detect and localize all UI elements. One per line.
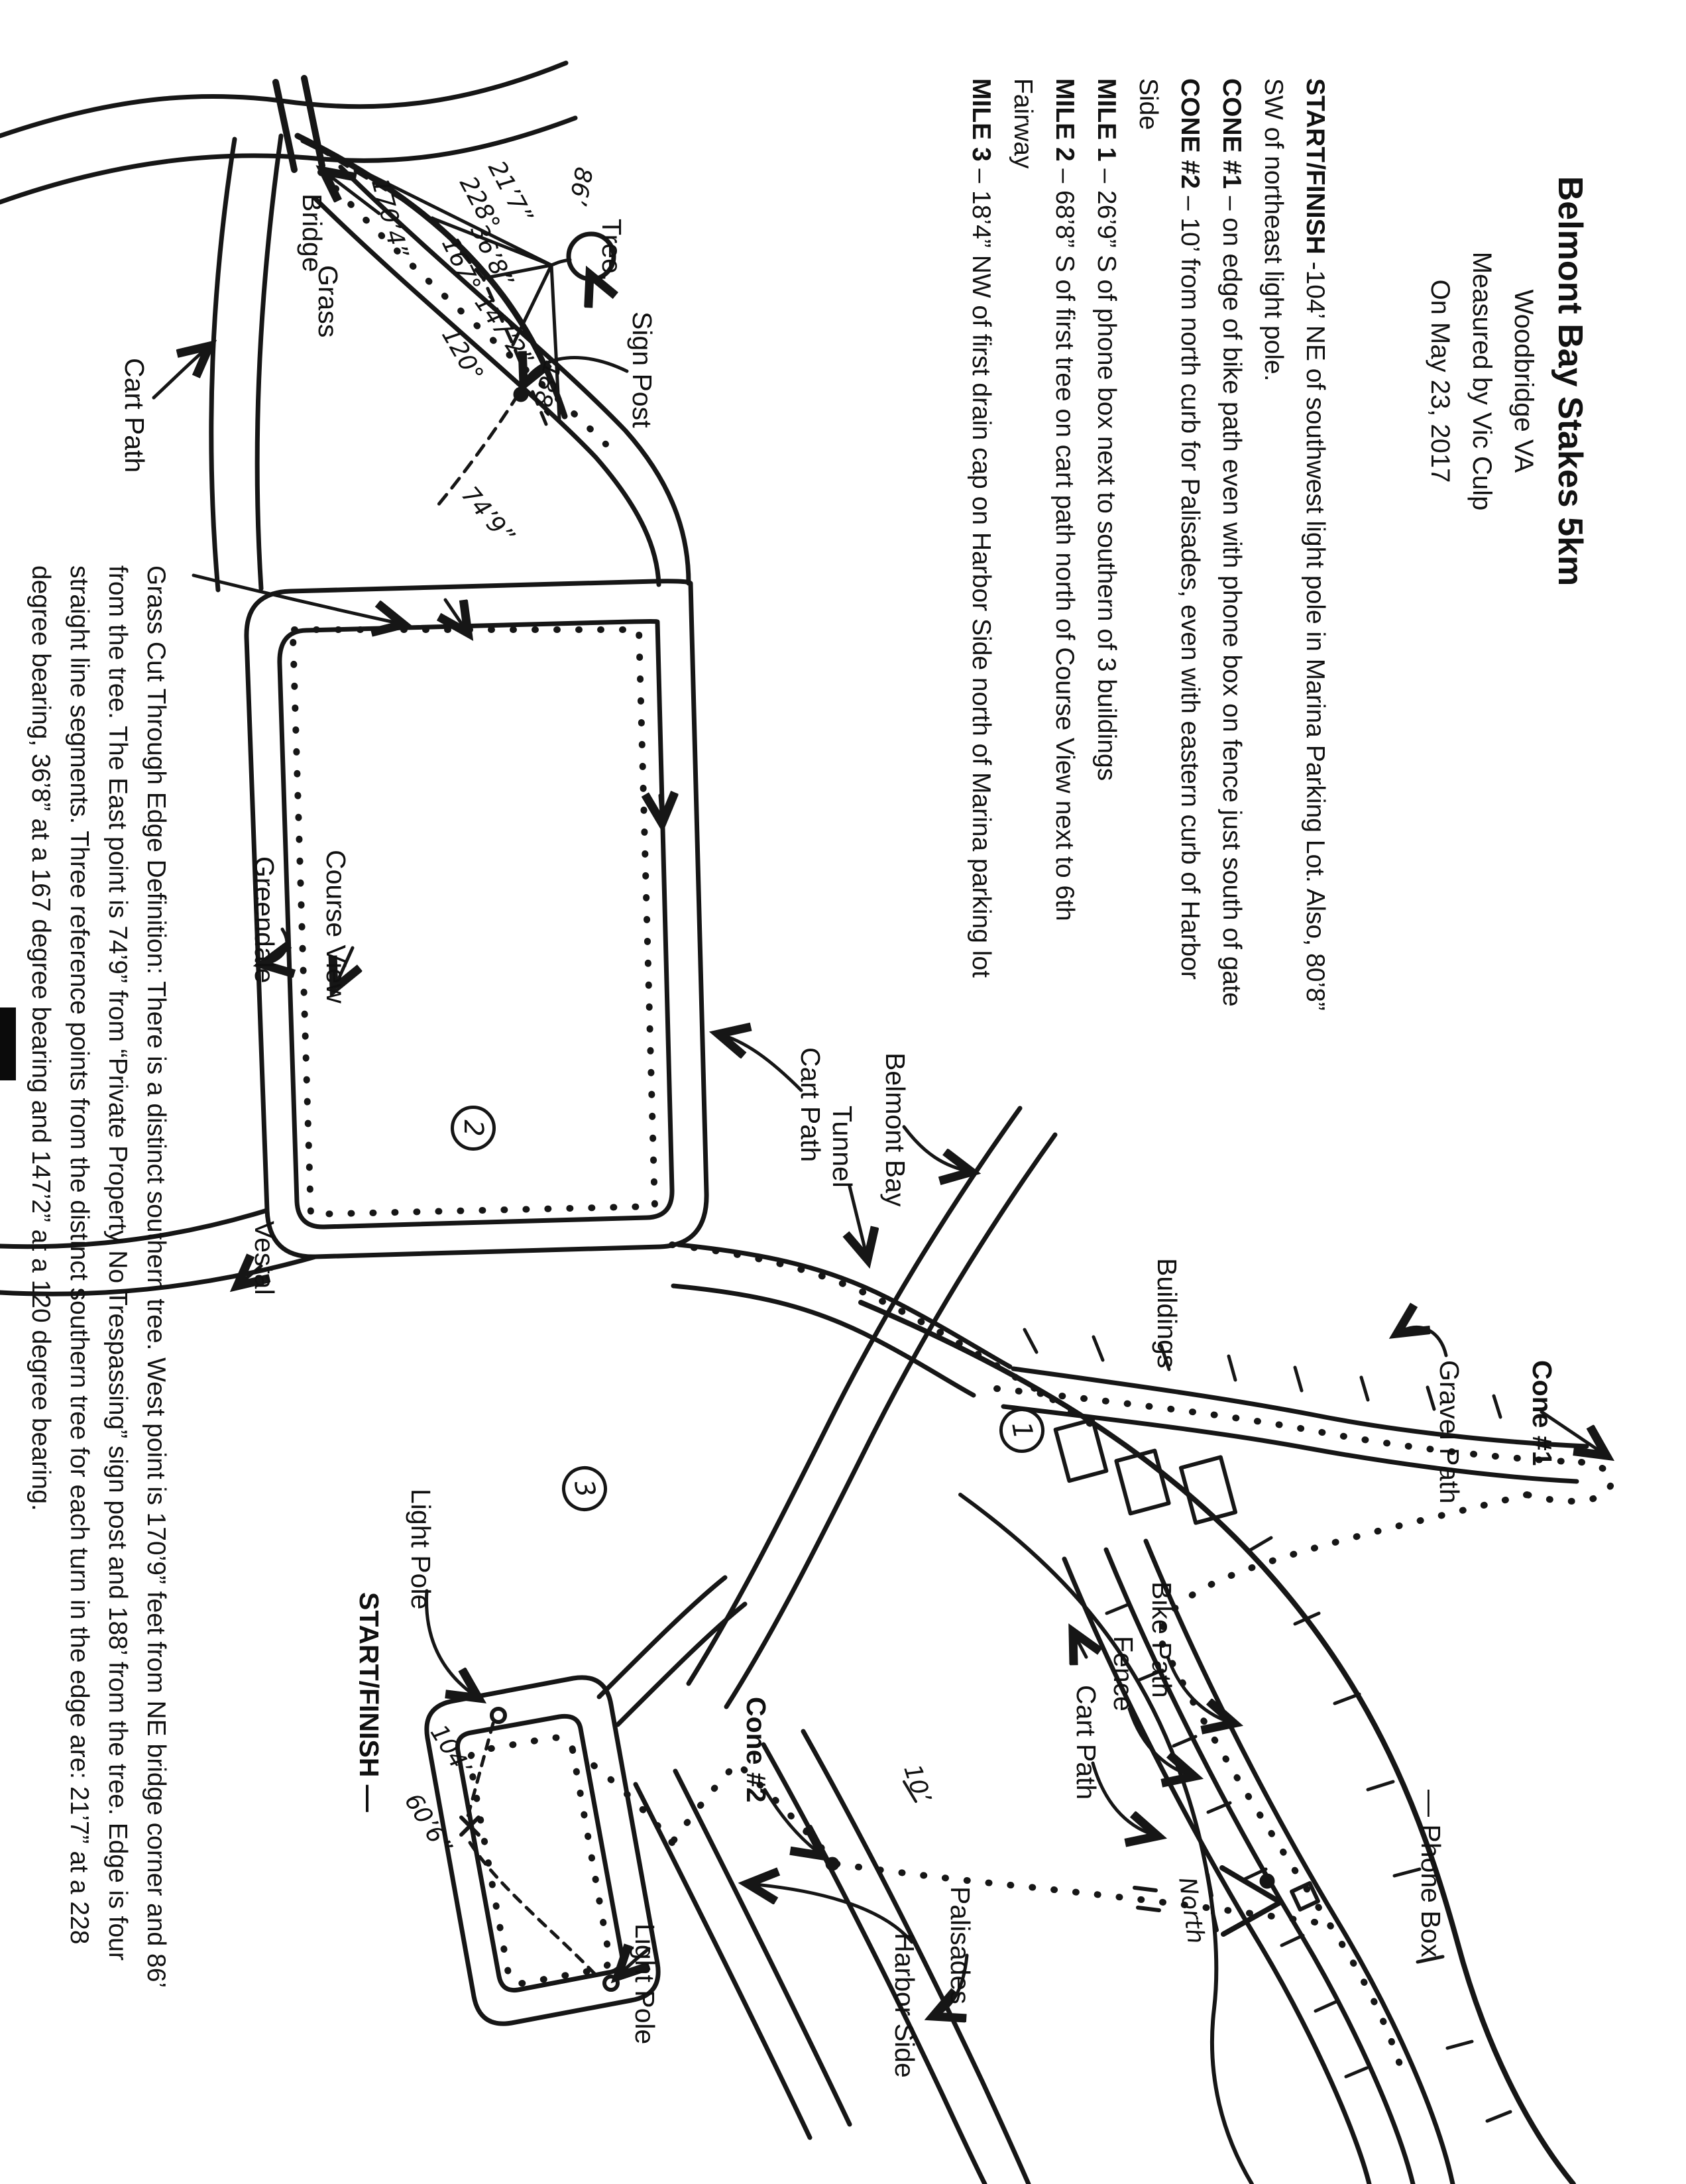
bridge-label: Bridge: [296, 194, 327, 272]
mile-marker-2: 2: [451, 1106, 496, 1151]
note-keyword: CONE #1: [1217, 78, 1246, 189]
buildings-label: Buildings: [1151, 1258, 1182, 1368]
map-sheet: Belmont Bay Stakes 5km Woodbridge VA Mea…: [0, 0, 1686, 2184]
edge-note-line: straight line segments. Three reference …: [60, 565, 98, 1988]
phone-box-label: — Phone Box: [1415, 1790, 1446, 1957]
note-text: Fairway: [1009, 78, 1037, 169]
gravel-path-label: Gravel Path: [1433, 1360, 1465, 1504]
light-pole-symbol-ne: [604, 1977, 618, 1990]
north-arrow: [1135, 1868, 1280, 1934]
tunnel-road: [673, 1245, 1010, 1395]
fence-label: Fence: [1107, 1636, 1139, 1711]
tunnel-label: Tunnel: [826, 1106, 858, 1188]
note-line: MILE 3 – 18’4” NW of first drain cap on …: [960, 78, 1002, 1011]
cart-path-nw-label: Cart Path: [119, 358, 150, 473]
course-notes: START/FINISH -104’ NE of southwest light…: [960, 78, 1336, 1011]
cone-2-label: Cone #2: [740, 1697, 771, 1803]
street-block-loop: [247, 581, 706, 1257]
note-text: – 10’ from north curb for Palisades, eve…: [1176, 189, 1204, 980]
note-keyword: START/FINISH: [1301, 78, 1329, 255]
cart-path-nw-road: [211, 136, 281, 590]
note-line: MILE 2 – 68’8” S of first tree on cart p…: [1044, 78, 1086, 1011]
note-keyword: MILE 1: [1092, 78, 1121, 162]
cart-path-e-label: Cart Path: [1070, 1685, 1101, 1800]
note-line: Side: [1127, 78, 1169, 1011]
note-keyword: MILE 2: [1050, 78, 1079, 162]
greendale-label: Greendale: [249, 856, 280, 983]
edge-note-line: from the tree. The East point is 74’9” f…: [98, 565, 137, 1988]
tree-label: Tree,: [596, 219, 627, 281]
cone-1-label: Cone #1: [1526, 1360, 1557, 1466]
vestal-label: Vestal: [249, 1221, 280, 1295]
edge-note-line: degree bearing, 36’8” at a 167 degree be…: [21, 565, 60, 1988]
light-pole-symbol-sw: [492, 1709, 505, 1722]
edge-definition-note: Grass Cut Through Edge Definition: There…: [21, 565, 175, 1988]
belmont-bay-road: [689, 1108, 1055, 1707]
cart-path-mid-label: Cart Path: [795, 1047, 826, 1162]
grass-cut-pointer-arrow: [194, 575, 404, 624]
note-line: SW of northeast light pole.: [1253, 78, 1294, 1011]
harbor-side-road: [636, 1771, 850, 2138]
note-text: – 26’9” S of phone box next to southern …: [1092, 162, 1121, 781]
note-line: START/FINISH -104’ NE of southwest light…: [1294, 78, 1336, 1011]
subtitle-location: Woodbridge VA: [1508, 116, 1538, 646]
start-finish-label: START/FINISH —: [353, 1592, 384, 1812]
harbor-side-label: Harbor Side: [889, 1933, 920, 2078]
scan-artifact: [0, 1007, 16, 1080]
note-text: – 18’4” NW of first drain cap on Harbor …: [967, 162, 995, 978]
light-pole-s-label: Light Pole: [629, 1924, 660, 2044]
note-text: – 68’8” S of first tree on cart path nor…: [1050, 162, 1079, 921]
belmont-bay-label: Belmont Bay: [879, 1053, 911, 1206]
subtitle-measurer: Measured by Vic Culp: [1467, 116, 1496, 646]
buildings: [1056, 1420, 1235, 1523]
title-block: Belmont Bay Stakes 5km Woodbridge VA Mea…: [1425, 116, 1590, 646]
note-text: Side: [1134, 78, 1162, 130]
light-pole-w-label: Light Pole: [405, 1489, 436, 1609]
page-title: Belmont Bay Stakes 5km: [1550, 116, 1590, 646]
note-line: CONE #2 – 10’ from north curb for Palisa…: [1169, 78, 1211, 1011]
note-line: Fairway: [1002, 78, 1044, 1011]
course-view-label: Course View: [320, 850, 351, 1004]
bike-path-label: Bike Path: [1146, 1581, 1177, 1698]
gravel-path-road: [1003, 1330, 1587, 1481]
edge-note-line: Grass Cut Through Edge Definition: There…: [137, 565, 175, 1988]
note-line: MILE 1 – 26’9” S of phone box next to so…: [1086, 78, 1127, 1011]
grass-label: Grass: [312, 265, 343, 337]
note-text: – on edge of bike path even with phone b…: [1217, 189, 1246, 1007]
palisades-label: Palisades: [944, 1886, 976, 2004]
note-line: CONE #1 – on edge of bike path even with…: [1211, 78, 1253, 1011]
note-text: -104’ NE of southwest light pole in Mari…: [1301, 255, 1329, 1011]
note-text: SW of northeast light pole.: [1259, 78, 1288, 381]
subtitle-date: On May 23, 2017: [1425, 116, 1455, 646]
note-keyword: MILE 3: [967, 78, 995, 162]
note-keyword: CONE #2: [1176, 78, 1204, 189]
scanned-course-map-page: { "page": { "title": "Belmont Bay Stakes…: [0, 0, 1686, 2184]
sign-post-label: Sign Post: [626, 312, 657, 428]
